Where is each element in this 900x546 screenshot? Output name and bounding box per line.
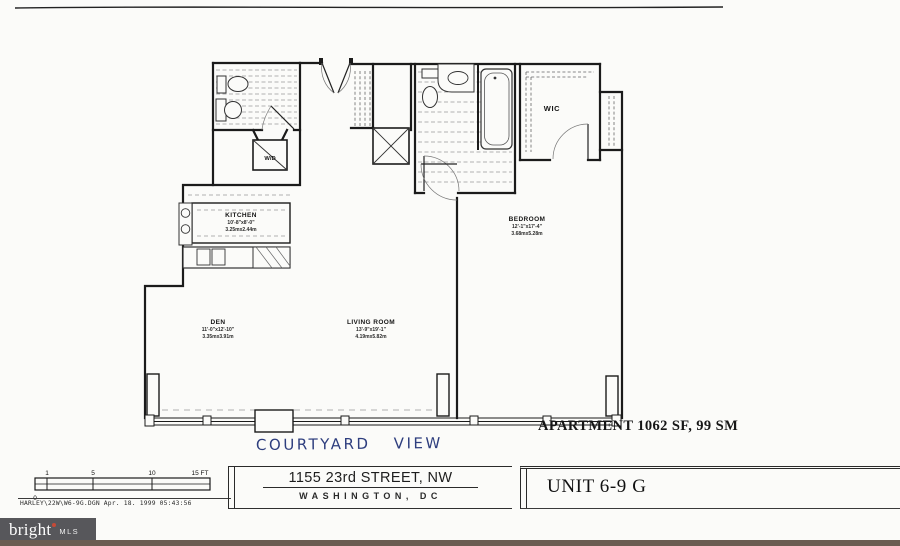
bright-accent-dot-icon (52, 523, 56, 527)
entry-double-door (319, 58, 353, 93)
courtyard-view-note: COURTYARD VIEW (256, 434, 443, 454)
kitchen-dims-m: 3.25mx2.44m (225, 227, 257, 234)
living-room-name: LIVING ROOM (347, 319, 395, 327)
washer-dryer-closet (253, 140, 287, 170)
address-divider (263, 487, 478, 488)
room-label-living-room: LIVING ROOM 13'-9"x19'-1" 4.19mx5.82m (347, 319, 395, 340)
bright-wordmark: bright (9, 521, 51, 538)
address-line-1: 1155 23rd STREET, NW (229, 470, 512, 486)
mls-wordmark: MLS (59, 527, 79, 536)
scale-tick-15ft: 15 FT (192, 470, 209, 477)
floor-plan-drawing: 1 5 10 15 FT 0 (0, 0, 900, 546)
scale-tick-1: 1 (45, 470, 49, 477)
floorplan-scan-page: 1 5 10 15 FT 0 KITCHEN 10'-8"x8'-0" 3.25… (0, 0, 900, 546)
kitchen-dims-ft: 10'-8"x8'-0" (225, 220, 257, 227)
bedroom-dims-ft: 12'-1"x17'-4" (509, 224, 546, 231)
scan-top-line (15, 7, 723, 8)
bathroom-1 (216, 70, 297, 130)
unit-label: UNIT 6-9 G (547, 476, 900, 498)
address-line-2: WASHINGTON, DC (229, 491, 512, 501)
plot-stamp-rule (18, 498, 231, 499)
living-room-dims-m: 4.19mx5.82m (347, 334, 395, 341)
bathroom-2 (418, 64, 512, 191)
den-name: DEN (202, 319, 234, 327)
address-title-block: 1155 23rd STREET, NW WASHINGTON, DC (228, 466, 512, 509)
bedroom-name: BEDROOM (509, 216, 546, 224)
footer-strip (0, 540, 900, 546)
bright-mls-logo: bright MLS (0, 518, 96, 540)
bedroom-dims-m: 3.68mx5.28m (509, 231, 546, 238)
shaft (373, 128, 409, 164)
room-label-washer-dryer: W/D (264, 156, 275, 162)
den-dims-m: 3.35mx3.91m (202, 334, 234, 341)
entry-closet (355, 71, 370, 126)
plot-stamp: HARLEY\22W\W6-9G.DGN Apr. 18. 1999 05:43… (20, 500, 192, 507)
room-label-bedroom: BEDROOM 12'-1"x17'-4" 3.68mx5.28m (509, 216, 546, 237)
apartment-area-label: APARTMENT 1062 SF, 99 SM (538, 418, 738, 435)
scale-tick-5: 5 (91, 470, 95, 477)
den-dims-ft: 11'-0"x12'-10" (202, 327, 234, 334)
room-label-wic: WIC (544, 104, 560, 113)
unit-title-block: UNIT 6-9 G (520, 466, 900, 509)
room-label-kitchen: KITCHEN 10'-8"x8'-0" 3.25mx2.44m (225, 212, 257, 233)
scale-tick-10: 10 (148, 470, 156, 477)
kitchen-name: KITCHEN (225, 212, 257, 220)
room-label-den: DEN 11'-0"x12'-10" 3.35mx3.91m (202, 319, 234, 340)
